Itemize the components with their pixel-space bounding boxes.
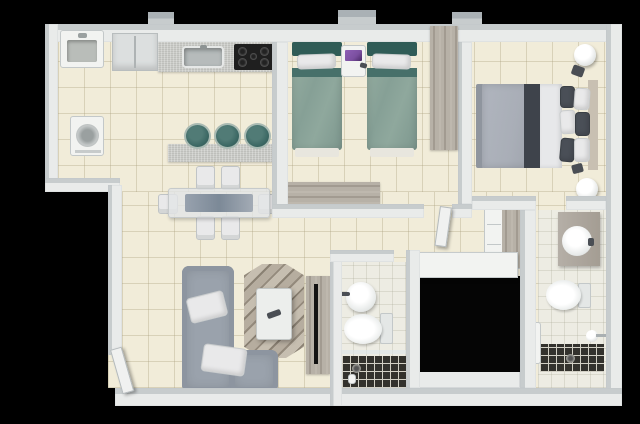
shower-glass-partition [340, 350, 406, 354]
wall-master-bottom-right [566, 196, 606, 210]
outer-wall-bottom [115, 388, 622, 406]
dining-chair [221, 216, 240, 240]
burner [238, 58, 247, 67]
bed-pillow-dark [575, 112, 590, 136]
fridge-door-split [134, 36, 136, 68]
wall-bedroom1-bottom-stub [452, 204, 472, 218]
dining-chair [196, 216, 215, 240]
washbasin [346, 282, 376, 312]
laptop [345, 50, 362, 61]
toilet-bowl [546, 280, 581, 310]
wall-void-left [406, 250, 420, 388]
burner-center [250, 53, 257, 60]
bed-blanket [367, 68, 417, 150]
tv-screen-edge [314, 284, 318, 364]
toilet-bowl [344, 314, 382, 344]
ensuite-shower-floor [540, 344, 604, 372]
twin-nightstand [341, 45, 366, 77]
twin-bed [292, 42, 342, 158]
wall-kitchen-bedroom1 [272, 42, 288, 218]
blanket-fold [367, 68, 417, 77]
washing-machine [70, 116, 104, 156]
burner [238, 47, 247, 56]
wardrobe-shelf-line [487, 224, 501, 225]
burner [260, 58, 269, 67]
washer-panel [75, 150, 101, 153]
shower-drain [566, 354, 575, 363]
washer-drum [76, 124, 99, 147]
shower-drain [352, 364, 361, 373]
throw-pillow [200, 343, 247, 377]
wall-social-bath-top [330, 250, 394, 262]
wall-bedroom1-bottom [272, 204, 424, 218]
toilet [344, 312, 394, 346]
outer-wall-right [606, 24, 622, 392]
wall-social-bath-left [330, 250, 342, 406]
dining-chair [196, 166, 215, 190]
tv-panel [306, 276, 330, 374]
bed-pillow [574, 138, 590, 162]
ensuite-toilet [546, 278, 592, 312]
floorplan-render [0, 0, 640, 424]
faucet-icon [78, 33, 87, 38]
twin-wardrobe [430, 26, 458, 150]
burner [260, 47, 269, 56]
bed-foot [295, 148, 339, 157]
bar-stool [214, 123, 241, 149]
towel-bar [596, 334, 606, 337]
twin-dresser [286, 182, 380, 204]
wardrobe-shelf-line [487, 244, 501, 245]
wall-master-bottom-left [472, 196, 536, 210]
bar-stool [244, 123, 271, 149]
remote-item [359, 62, 367, 69]
bed-pillow [297, 53, 336, 69]
bar-stool [184, 123, 211, 149]
double-bed [476, 80, 598, 170]
twin-bed [367, 42, 417, 158]
refrigerator [112, 33, 158, 71]
shampoo-item [348, 374, 356, 384]
shower-floor [342, 356, 406, 388]
dining-table [168, 188, 270, 218]
dining-table-glass [185, 194, 253, 212]
utility-sink-basin [67, 40, 97, 62]
void-bottom-ledge [418, 370, 520, 388]
kitchen-sink [182, 46, 224, 68]
bed-blanket [292, 68, 342, 150]
entry-bench-cabinet [412, 252, 518, 278]
table-decor-item [266, 309, 281, 319]
outer-wall-left-upper [45, 24, 58, 190]
faucet-icon [588, 238, 594, 246]
wall-bedroom1-master [458, 42, 472, 204]
faucet-icon [200, 45, 207, 49]
cooktop [234, 44, 274, 70]
round-nightstand [574, 44, 596, 66]
wall-closet-bathroom [520, 210, 536, 388]
bed-pillow [573, 87, 590, 110]
bed-pillow [372, 53, 411, 69]
dining-chair [221, 166, 240, 190]
bed-foot [370, 148, 414, 157]
utility-sink [60, 30, 104, 68]
coffee-table [256, 288, 292, 340]
outer-wall-left-lower [108, 185, 122, 355]
unrendered-void [418, 276, 520, 372]
